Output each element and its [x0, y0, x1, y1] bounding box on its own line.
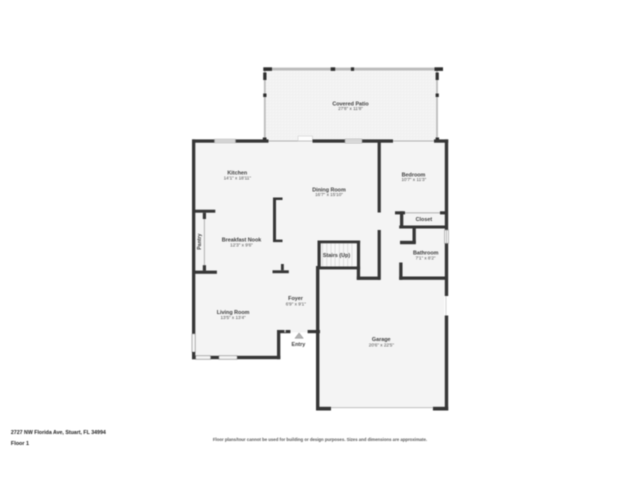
svg-text:6'9" x 9'1": 6'9" x 9'1"	[286, 301, 306, 306]
svg-text:7'1" x 8'2": 7'1" x 8'2"	[415, 256, 435, 261]
svg-text:14'1" x 18'11": 14'1" x 18'11"	[224, 176, 252, 181]
svg-text:16'7" x 15'10": 16'7" x 15'10"	[315, 192, 343, 197]
svg-text:Closet: Closet	[416, 217, 433, 223]
svg-text:13'5" x 13'4": 13'5" x 13'4"	[220, 315, 246, 320]
svg-text:10'7" x 11'3": 10'7" x 11'3"	[401, 177, 426, 182]
svg-text:12'3" x 9'6": 12'3" x 9'6"	[230, 242, 253, 247]
svg-text:Floor 1: Floor 1	[11, 441, 29, 447]
svg-text:27'8" x 11'8": 27'8" x 11'8"	[338, 106, 363, 111]
svg-text:Floor plans/tour cannot be use: Floor plans/tour cannot be used for buil…	[213, 437, 427, 442]
svg-text:20'6" x 22'5": 20'6" x 22'5"	[369, 342, 395, 347]
svg-text:Entry: Entry	[292, 342, 306, 348]
svg-text:Pantry: Pantry	[197, 234, 203, 250]
svg-text:2727 NW Florida Ave, Stuart, F: 2727 NW Florida Ave, Stuart, FL 34994	[11, 430, 106, 436]
svg-text:Stairs (Up): Stairs (Up)	[323, 253, 350, 259]
